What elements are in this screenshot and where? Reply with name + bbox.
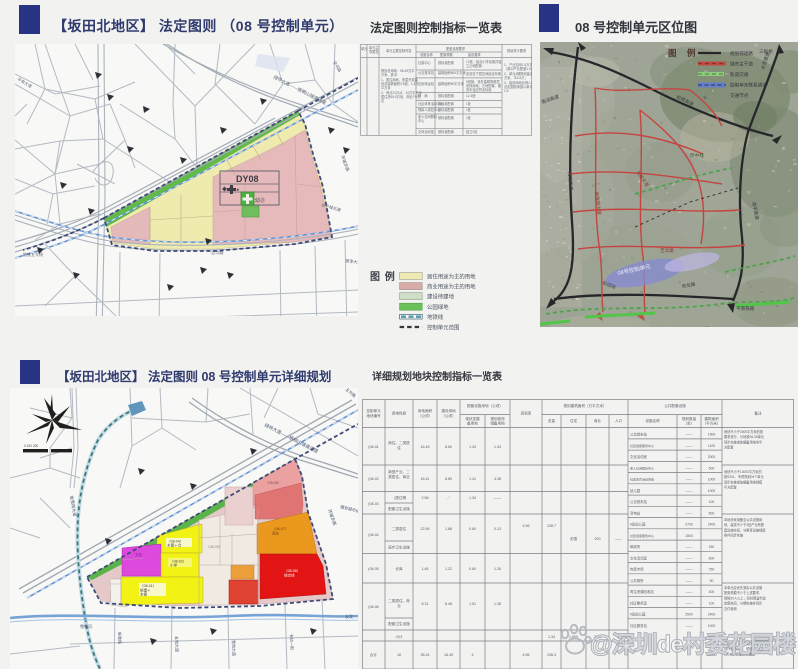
svg-text:单元主要控制内容: 单元主要控制内容: [386, 48, 412, 53]
svg-text:用地性质: 用地性质: [392, 411, 407, 416]
svg-text:9班幼儿园: 9班幼儿园: [630, 612, 646, 617]
svg-text:2.56: 2.56: [422, 496, 429, 500]
svg-text:——: ——: [686, 444, 693, 448]
svg-text:立占地配置: 立占地配置: [466, 63, 482, 68]
svg-text:配置规模不少于上述要求，: 配置规模不少于上述要求，: [724, 590, 762, 595]
svg-text:条件同步实施: 条件同步实施: [724, 533, 744, 538]
svg-text:4.38: 4.38: [494, 477, 501, 481]
svg-text:同步实施或依据备用地规模: 同步实施或依据备用地规模: [724, 479, 763, 484]
svg-text:规划快速路: 规划快速路: [730, 50, 753, 57]
svg-text:按S201、专项规划04个单元: 按S201、专项规划04个单元: [724, 474, 764, 479]
svg-text:18.41: 18.41: [421, 477, 430, 481]
svg-text:按标准配置: 按标准配置: [438, 115, 454, 120]
svg-text:设施名称: 设施名称: [645, 418, 660, 423]
svg-text:公交首末站: 公交首末站: [418, 70, 435, 75]
svg-text:16: 16: [397, 653, 401, 657]
svg-text:@深圳de村委花园楼: @深圳de村委花园楼: [590, 631, 796, 657]
svg-text:变电站: 变电站: [630, 510, 641, 515]
svg-text:小计: 小计: [395, 634, 403, 639]
svg-text:——: ——: [494, 496, 502, 500]
svg-text:建设用地: 建设用地: [441, 408, 456, 413]
svg-text:无限: 无限: [570, 536, 578, 541]
svg-text:小学: 小学: [170, 563, 178, 568]
svg-text:业: 业: [397, 603, 401, 608]
svg-text:1.51: 1.51: [469, 602, 476, 606]
svg-text:200: 200: [595, 537, 601, 541]
svg-text:(08-02: (08-02: [368, 477, 378, 481]
svg-text:16.45: 16.45: [444, 653, 453, 657]
svg-text:同步实施或依据备用地块平: 同步实施或依据备用地块平: [724, 439, 763, 444]
svg-text:配套设施用地（公顷）: 配套设施用地（公顷）: [467, 403, 503, 408]
svg-text:——: ——: [686, 489, 693, 493]
svg-text:——: ——: [686, 556, 693, 560]
svg-text:——: ——: [686, 590, 693, 594]
svg-text:——: ——: [686, 478, 693, 482]
svg-text:按标准配置: 按标准配置: [438, 93, 454, 98]
svg-text:DY08: DY08: [236, 174, 259, 184]
svg-text:1.43: 1.43: [469, 445, 476, 449]
svg-text:方配置: 方配置: [724, 445, 734, 450]
svg-text:导属性: 导属性: [369, 49, 379, 54]
svg-text:商业用途为主的用地: 商业用途为主的用地: [427, 283, 476, 291]
svg-text:三板桥: 三板桥: [759, 48, 773, 55]
svg-text:五和大道: 五和大道: [174, 636, 181, 652]
svg-text:右: 右: [381, 98, 384, 103]
svg-text:238.3: 238.3: [547, 653, 556, 657]
svg-text:设施名称: 设施名称: [420, 52, 434, 57]
svg-text:本单元应优先落实公共设施: 本单元应优先落实公共设施: [724, 585, 763, 590]
svg-text:38.24: 38.24: [421, 653, 430, 657]
svg-text:建设待建地: 建设待建地: [427, 293, 455, 301]
svg-text:图 例: 图 例: [370, 270, 396, 283]
svg-text:文化: 文化: [135, 552, 143, 557]
svg-text:邮政所: 邮政所: [630, 544, 641, 549]
svg-text:（08-07）: （08-07）: [272, 526, 288, 531]
svg-text:(08-05: (08-05: [368, 567, 378, 571]
svg-text:人口: 人口: [615, 418, 623, 423]
svg-text:规划政府: 规划政府: [490, 416, 505, 421]
svg-text:商业: 商业: [594, 418, 602, 423]
svg-text:社区警务室: 社区警务室: [630, 600, 648, 605]
svg-text:类居住、商业: 类居住、商业: [388, 474, 410, 479]
svg-text:1.88: 1.88: [445, 527, 452, 531]
svg-text:再生资源回收站: 再生资源回收站: [630, 589, 654, 594]
svg-text:现状发展: 现状发展: [465, 416, 480, 421]
svg-text:1100: 1100: [708, 444, 715, 448]
svg-text:住宅: 住宅: [570, 418, 578, 423]
svg-text:社区体育活动场地: 社区体育活动场地: [630, 477, 654, 482]
svg-text:——: ——: [686, 568, 693, 572]
svg-text:8.31: 8.31: [422, 602, 429, 606]
svg-text:0.60: 0.60: [469, 527, 476, 531]
svg-text:1处: 1处: [466, 107, 472, 112]
svg-text:2700: 2700: [685, 523, 693, 527]
svg-text:走廊空间，分期实施并同步: 走廊空间，分期实施并同步: [724, 601, 762, 606]
svg-text:1000: 1000: [708, 489, 716, 493]
svg-text:150: 150: [709, 545, 715, 549]
svg-text:（其中产业配套1.5万）、: （其中产业配套1.5万）、: [504, 66, 532, 71]
svg-text:配套卫生设施: 配套卫生设施: [388, 506, 410, 511]
svg-text:木管＋仓: 木管＋仓: [167, 543, 182, 548]
svg-text:2400: 2400: [708, 613, 716, 617]
svg-text:1处: 1处: [466, 115, 472, 120]
svg-text:容积率: 容积率: [521, 411, 532, 416]
svg-text:400: 400: [709, 590, 715, 594]
svg-text:二类居住: 二类居住: [392, 526, 407, 531]
svg-text:环中线: 环中线: [690, 152, 704, 159]
svg-text:新型产业、二: 新型产业、二: [388, 469, 410, 474]
svg-text:4.56: 4.56: [523, 653, 530, 657]
svg-text:地、建设不少于3处产业转配: 地、建设不少于3处产业转配: [724, 522, 765, 527]
svg-text:单元: 单元: [361, 46, 368, 51]
svg-text:按标准配置: 按标准配置: [438, 129, 454, 134]
svg-text:750: 750: [709, 568, 715, 572]
svg-text:老人日间照料中心: 老人日间照料中心: [630, 465, 654, 470]
svg-text:肉菜市场: 肉菜市场: [630, 567, 644, 572]
svg-text:吉华路: 吉华路: [660, 247, 674, 254]
svg-text:配套设施要求: 配套设施要求: [446, 46, 466, 51]
svg-text:住: 住: [397, 445, 401, 450]
svg-text:方米、平4.5万；: 方米、平4.5万；: [504, 75, 528, 80]
svg-text:0.13: 0.13: [494, 527, 501, 531]
svg-text:——: ——: [686, 579, 693, 583]
svg-text:公共配套设施: 公共配套设施: [664, 403, 686, 408]
svg-text:总量: 总量: [548, 418, 556, 423]
svg-text:16.45: 16.45: [421, 445, 430, 449]
svg-text:保障50人以上；同时预留市政: 保障50人以上；同时预留市政: [724, 595, 767, 600]
svg-text:12-6班: 12-6班: [466, 93, 476, 98]
svg-text:平方米: 平方米: [381, 85, 391, 90]
svg-text:规划建筑面积（万平方米）: 规划建筑面积（万平方米）: [563, 403, 606, 408]
svg-text:100: 100: [709, 500, 715, 504]
svg-text:平南铁路: 平南铁路: [736, 305, 755, 312]
svg-text:（08-01）: （08-01）: [140, 583, 156, 588]
svg-text:——: ——: [686, 433, 693, 437]
svg-text:——: ——: [686, 500, 693, 504]
svg-text:——: ——: [686, 466, 693, 470]
svg-text:方米、其中：: 方米、其中：: [381, 72, 400, 77]
svg-text:6.48: 6.48: [445, 602, 452, 606]
svg-text:0.60: 0.60: [469, 567, 476, 571]
svg-text:雪岗大道: 雪岗大道: [231, 640, 238, 656]
svg-text:地块不小于13000平方米的: 地块不小于13000平方米的: [724, 469, 762, 474]
svg-text:地铁五号线: 地铁五号线: [23, 251, 43, 257]
svg-text:文体活动室: 文体活动室: [418, 129, 434, 134]
svg-text:社康中心: 社康中心: [418, 60, 432, 65]
svg-text:文化活动室: 文化活动室: [630, 454, 648, 459]
svg-text:（公顷）: （公顷）: [418, 413, 432, 418]
svg-text:社区健康服务中心: 社区健康服务中心: [630, 443, 654, 448]
svg-text:(08-04: (08-04: [368, 533, 378, 537]
svg-text:（08-05）: （08-05）: [206, 544, 222, 549]
svg-text:8.89: 8.89: [445, 477, 452, 481]
svg-text:（08-08）: （08-08）: [284, 568, 300, 573]
svg-text:1.41: 1.41: [469, 477, 476, 481]
svg-text:（08-06）: （08-06）: [265, 480, 281, 485]
svg-text:※: ※: [703, 95, 707, 101]
svg-text:吉华路: 吉华路: [211, 249, 224, 256]
svg-text:控制单元: 控制单元: [366, 408, 381, 413]
svg-text:1500: 1500: [708, 433, 716, 437]
svg-text:公交首末站: 公交首末站: [630, 499, 648, 504]
svg-text:1.34: 1.34: [494, 445, 501, 449]
svg-text:公交首末站: 公交首末站: [630, 432, 648, 437]
svg-text:1处: 1处: [466, 101, 472, 106]
svg-text:——: ——: [686, 511, 693, 515]
svg-text:务半径应符合标准: 务半径应符合标准: [466, 87, 492, 92]
svg-text:规划数量: 规划数量: [682, 416, 697, 421]
svg-text:——: ——: [686, 601, 693, 605]
svg-text:仓库: 仓库: [395, 566, 403, 571]
svg-text:4: 4: [472, 653, 474, 657]
svg-text:按标准配置: 按标准配置: [438, 107, 454, 112]
svg-text:套设施空间、与教育设施规模: 套设施空间、与教育设施规模: [724, 527, 766, 532]
svg-text:居住用途为主的用地: 居住用途为主的用地: [427, 273, 476, 281]
svg-text:中心: 中心: [418, 118, 425, 123]
svg-text:1.22: 1.22: [445, 567, 452, 571]
svg-text:商业: 商业: [272, 531, 280, 536]
svg-text:商住、二类居: 商住、二类居: [388, 440, 410, 445]
svg-text:500: 500: [709, 466, 715, 470]
svg-text:本地块采用备忘公共设施用: 本地块采用备忘公共设施用: [724, 517, 762, 522]
svg-text:控制单元范围: 控制单元范围: [427, 324, 459, 332]
svg-text:(08-03: (08-03: [368, 502, 378, 506]
svg-text:600: 600: [709, 556, 715, 560]
svg-text:0 100 200: 0 100 200: [24, 444, 38, 448]
svg-text:合计: 合计: [370, 652, 378, 657]
svg-text:50: 50: [710, 579, 714, 583]
svg-text:（平方米）: （平方米）: [703, 421, 721, 426]
svg-text:建筑面积: 建筑面积: [704, 416, 719, 421]
svg-text:图 例: 图 例: [668, 48, 699, 58]
svg-text:4.56: 4.56: [523, 524, 530, 528]
svg-text:8.60: 8.60: [445, 445, 452, 449]
svg-text:配置规模: 配置规模: [440, 52, 454, 57]
svg-text:幼㉑: 幼㉑: [255, 197, 265, 204]
svg-text:储备用地: 储备用地: [490, 421, 505, 426]
svg-text:配套卫生设施: 配套卫生设施: [388, 621, 410, 626]
svg-text:控制单元联系通道: 控制单元联系通道: [730, 82, 767, 89]
svg-text:独立2处: 独立2处: [466, 129, 478, 134]
svg-text:（居住等: （居住等: [392, 495, 407, 500]
svg-text:备注: 备注: [754, 411, 762, 416]
svg-text:100: 100: [709, 601, 715, 605]
svg-text:（处）: （处）: [684, 421, 695, 426]
svg-text:1000: 1000: [708, 478, 716, 482]
svg-text:二类居住、商: 二类居住、商: [388, 598, 410, 603]
svg-text:本管: 本管: [140, 592, 148, 597]
svg-text:1.38: 1.38: [494, 602, 501, 606]
svg-text:用地面积: 用地面积: [418, 408, 433, 413]
svg-text:雪象河: 雪象河: [80, 623, 92, 629]
svg-text:应设在下层空间结合布置: 应设在下层空间结合布置: [466, 71, 501, 76]
svg-text:（公顷）: （公顷）: [441, 413, 455, 418]
svg-text:轨道交通: 轨道交通: [730, 71, 749, 78]
svg-text:建设要求: 建设要求: [468, 52, 482, 57]
svg-text:建筑面积800平方米: 建筑面积800平方米: [438, 70, 466, 75]
svg-text:长坑一街: 长坑一街: [289, 634, 296, 650]
svg-text:要求进行、与地铁06-08单元: 要求进行、与地铁06-08单元: [724, 434, 765, 439]
svg-text:备用地: 备用地: [467, 421, 478, 426]
svg-text:地铁线: 地铁线: [427, 313, 444, 321]
svg-text:医疗卫生设施: 医疗卫生设施: [388, 545, 410, 550]
svg-text:文化活动室: 文化活动室: [630, 555, 648, 560]
svg-text:按标准配置: 按标准配置: [438, 60, 454, 65]
svg-text:(08-01: (08-01: [368, 445, 378, 449]
svg-text:垃圾转运站: 垃圾转运站: [418, 81, 435, 86]
svg-text:综合体: 综合体: [284, 573, 295, 578]
svg-text:地块不小于3000平方米的按: 地块不小于3000平方米的按: [724, 429, 764, 434]
svg-text:1.46: 1.46: [422, 567, 429, 571]
svg-text:1.5: 1.5: [504, 89, 509, 93]
svg-text:幼儿园: 幼儿园: [630, 488, 641, 493]
svg-text:地块编号: 地块编号: [366, 413, 381, 418]
svg-text:1500: 1500: [685, 534, 693, 538]
svg-text:按标准配置: 按标准配置: [438, 101, 454, 106]
svg-text:22.56: 22.56: [421, 527, 430, 531]
svg-text:长发: 长发: [345, 613, 353, 619]
svg-text:1.26: 1.26: [494, 567, 501, 571]
svg-text:新雪路: 新雪路: [117, 632, 123, 644]
svg-text:——: ——: [615, 537, 623, 541]
svg-text:——: ——: [686, 545, 693, 549]
svg-text:500: 500: [709, 511, 715, 515]
svg-text:2400: 2400: [708, 523, 716, 527]
svg-text:交付使用: 交付使用: [724, 606, 737, 611]
svg-text:2500: 2500: [685, 613, 693, 617]
svg-text:居住总65.5万米、商业7%左: 居住总65.5万米、商业7%左: [381, 94, 421, 99]
svg-text:公园绿地: 公园绿地: [427, 303, 449, 311]
svg-text:平方配置: 平方配置: [724, 485, 737, 490]
svg-text:2000: 2000: [708, 455, 716, 459]
svg-text:规划执行要求: 规划执行要求: [507, 48, 527, 53]
svg-text:城市主干道: 城市主干道: [730, 61, 753, 68]
svg-text:社区健康服务中心: 社区健康服务中心: [630, 533, 654, 538]
svg-text:9班幼儿园: 9班幼儿园: [630, 522, 646, 527]
svg-text:公共厕所: 公共厕所: [630, 578, 644, 583]
svg-text:建筑面积60平方米: 建筑面积60平方米: [438, 81, 465, 86]
svg-text:交通节点: 交通节点: [730, 92, 749, 99]
svg-text:(08-06: (08-06: [368, 605, 378, 609]
svg-text:238.7: 238.7: [547, 524, 556, 528]
svg-text:1.34: 1.34: [469, 496, 476, 500]
svg-text:——: ——: [686, 455, 693, 459]
svg-text:／: ／: [447, 495, 451, 500]
svg-text:1.34: 1.34: [548, 635, 555, 639]
